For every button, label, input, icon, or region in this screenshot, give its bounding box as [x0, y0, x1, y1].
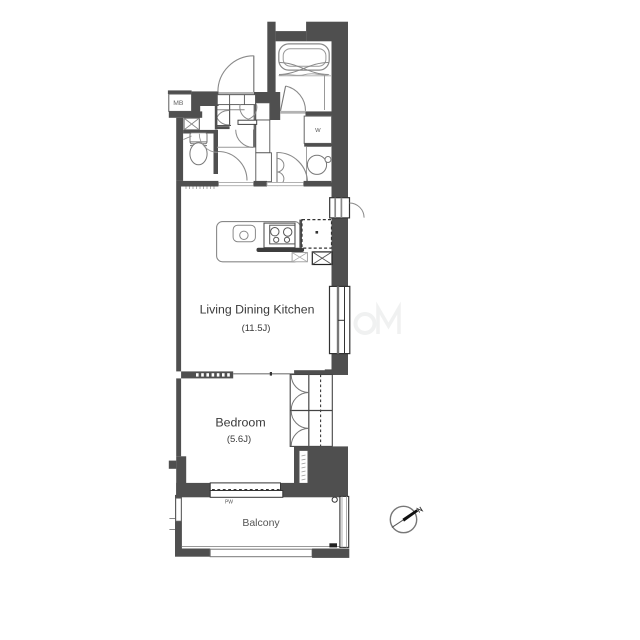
svg-text:MB: MB — [173, 100, 184, 107]
svg-text:(5.6J): (5.6J) — [227, 434, 251, 445]
svg-text:PW: PW — [225, 500, 233, 506]
svg-text:Bedroom: Bedroom — [215, 416, 265, 430]
svg-text:Balcony: Balcony — [242, 517, 280, 529]
svg-text:(11.5J): (11.5J) — [242, 323, 271, 334]
svg-text:Living Dining Kitchen: Living Dining Kitchen — [200, 303, 315, 317]
svg-text:W: W — [315, 128, 321, 134]
